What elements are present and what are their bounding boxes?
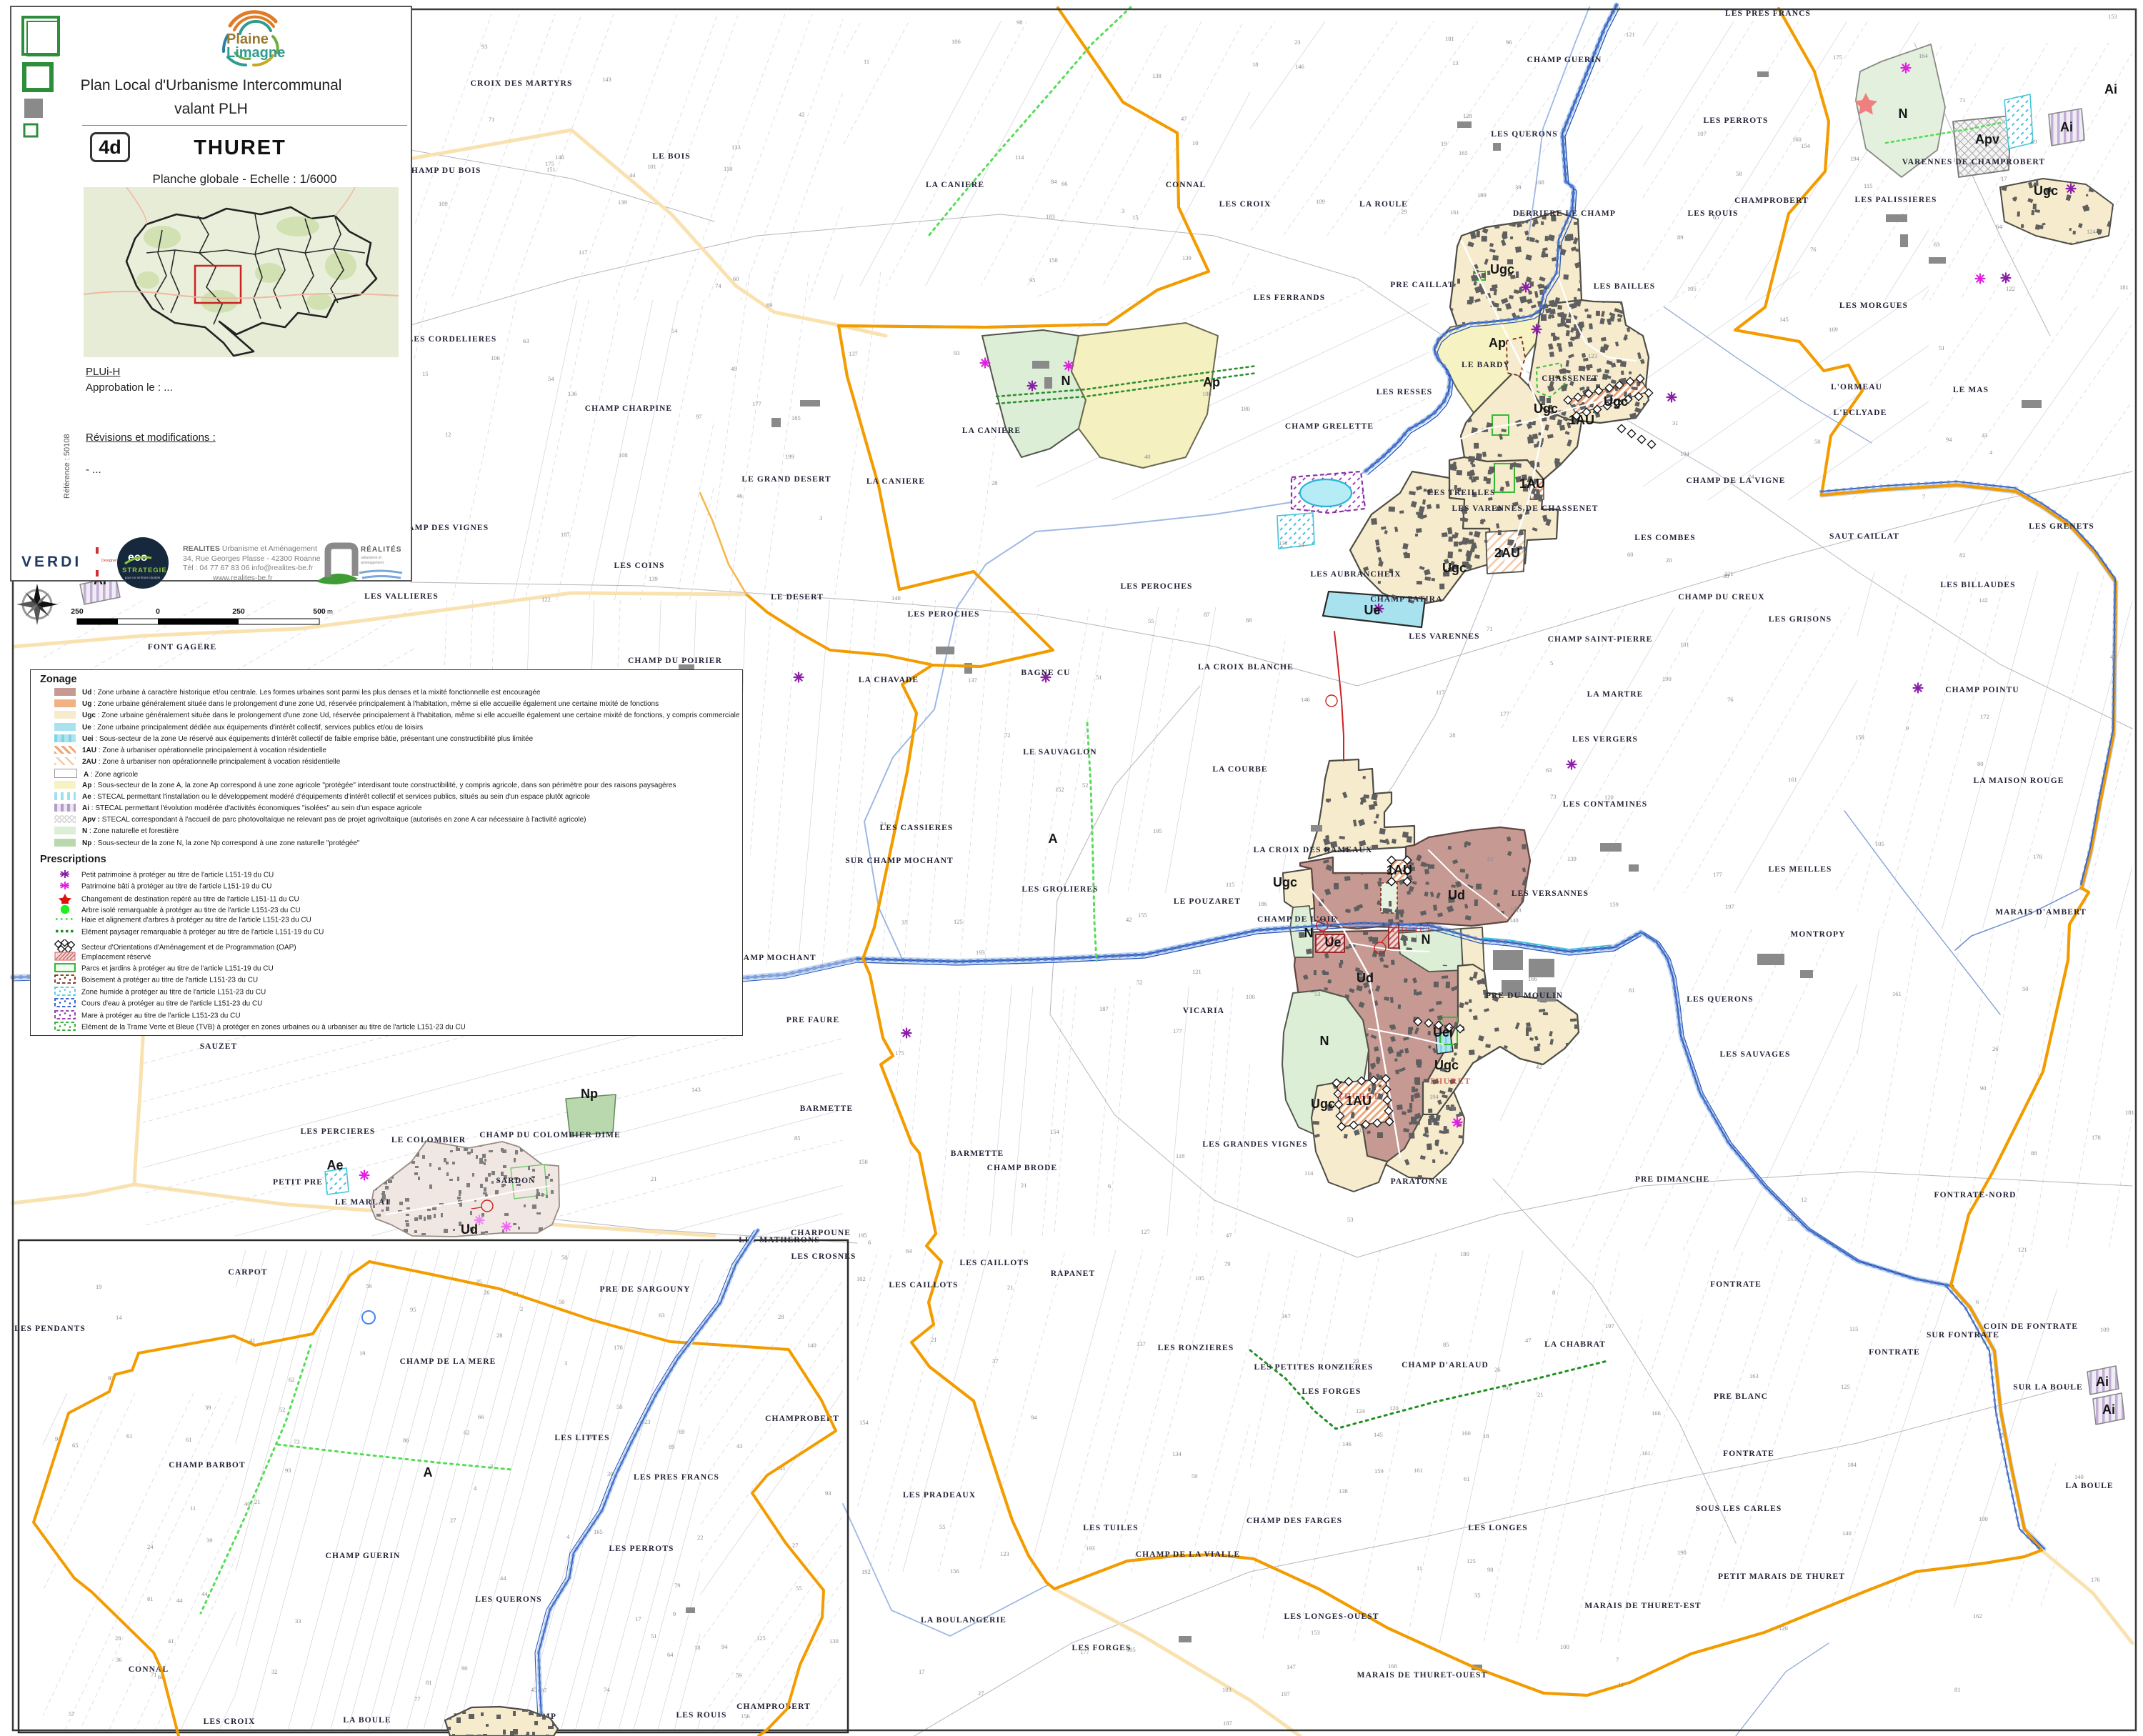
svg-text:177: 177 <box>1173 1027 1182 1034</box>
svg-text:121: 121 <box>2018 1246 2027 1253</box>
svg-text:Ud: Ud <box>1357 971 1374 985</box>
svg-text:160: 160 <box>1792 136 1802 143</box>
svg-text:CHAMP GRELETTE: CHAMP GRELETTE <box>1285 422 1374 431</box>
svg-text:52: 52 <box>1137 979 1143 986</box>
svg-text:41: 41 <box>168 1637 174 1645</box>
svg-text:84: 84 <box>1051 178 1057 185</box>
svg-text:BARMETTE: BARMETTE <box>800 1104 854 1113</box>
svg-text:163: 163 <box>1749 1372 1759 1380</box>
svg-text:59: 59 <box>736 1672 742 1679</box>
svg-text:LES PRES FRANCS: LES PRES FRANCS <box>1725 9 1811 18</box>
svg-text:162: 162 <box>1973 1612 1982 1620</box>
svg-text:LES QUERONS: LES QUERONS <box>1491 130 1558 139</box>
svg-text:500: 500 <box>313 607 326 616</box>
svg-text:21: 21 <box>1537 1391 1544 1398</box>
svg-text:137: 137 <box>849 350 858 357</box>
svg-text:LE POUZARET: LE POUZARET <box>1174 897 1241 906</box>
svg-text:142: 142 <box>1979 597 1988 604</box>
svg-text:urbanisme et: urbanisme et <box>361 556 382 560</box>
svg-text:93: 93 <box>481 43 488 50</box>
svg-text:55: 55 <box>796 1585 802 1592</box>
svg-text:197: 197 <box>1725 903 1734 910</box>
svg-text:Ue: Ue <box>1324 935 1341 949</box>
svg-text:18: 18 <box>1252 61 1259 68</box>
svg-text:195: 195 <box>1153 827 1162 834</box>
svg-text:188: 188 <box>1202 390 1212 397</box>
svg-text:BARMETTE: BARMETTE <box>951 1149 1004 1158</box>
svg-text:164: 164 <box>1919 52 1929 59</box>
svg-text:53: 53 <box>1314 990 1321 997</box>
svg-text:69: 69 <box>679 1428 685 1435</box>
svg-text:LES PETITES RONZIERES: LES PETITES RONZIERES <box>1254 1363 1374 1372</box>
svg-text:137: 137 <box>968 677 977 684</box>
svg-text:104: 104 <box>1680 450 1690 457</box>
svg-text:LES PALISSIERES: LES PALISSIERES <box>1854 196 1937 204</box>
svg-text:82: 82 <box>1959 552 1966 559</box>
svg-text:CHAMP GUERIN: CHAMP GUERIN <box>326 1552 401 1560</box>
svg-text:53: 53 <box>1347 1216 1354 1223</box>
svg-text:109: 109 <box>1316 198 1325 205</box>
svg-text:FONTRATE: FONTRATE <box>1869 1348 1920 1357</box>
svg-text:32: 32 <box>271 1668 278 1675</box>
svg-text:71: 71 <box>1487 625 1493 632</box>
svg-text:147: 147 <box>1287 1663 1296 1670</box>
svg-text:63: 63 <box>1934 241 1940 248</box>
svg-text:88: 88 <box>1246 617 1252 624</box>
svg-text:187: 187 <box>1099 1005 1109 1012</box>
svg-text:61: 61 <box>186 1436 192 1443</box>
svg-text:88: 88 <box>2031 1149 2037 1157</box>
svg-text:PRE BLANC: PRE BLANC <box>1714 1392 1768 1401</box>
svg-text:CONNAL: CONNAL <box>1166 181 1206 189</box>
svg-text:79: 79 <box>674 1582 681 1589</box>
svg-text:105: 105 <box>1875 840 1884 847</box>
svg-text:49: 49 <box>731 365 737 372</box>
svg-text:187: 187 <box>1223 1720 1232 1727</box>
svg-text:166: 166 <box>1652 1410 1661 1417</box>
svg-text:Ai: Ai <box>2104 82 2117 96</box>
svg-text:50: 50 <box>1814 438 1821 445</box>
svg-text:130: 130 <box>829 1637 839 1645</box>
svg-text:PRE DU MOULIN: PRE DU MOULIN <box>1486 992 1563 1000</box>
svg-text:37: 37 <box>992 1357 999 1365</box>
svg-text:43: 43 <box>1982 431 1988 439</box>
svg-text:VICARIA: VICARIA <box>1183 1007 1224 1015</box>
svg-text:28: 28 <box>496 1332 503 1339</box>
svg-text:74: 74 <box>604 1686 610 1693</box>
svg-text:pour un territoire durable: pour un territoire durable <box>125 576 161 579</box>
svg-text:LA BOULE: LA BOULE <box>343 1716 391 1725</box>
svg-text:LES GRENETS: LES GRENETS <box>2029 522 2094 531</box>
svg-text:71: 71 <box>489 116 495 123</box>
svg-text:CHAMPROBERT: CHAMPROBERT <box>1734 196 1809 205</box>
svg-text:117: 117 <box>1436 689 1444 696</box>
svg-text:Ugc: Ugc <box>1434 1058 1459 1072</box>
svg-text:6: 6 <box>868 1239 871 1246</box>
svg-text:6: 6 <box>1108 1182 1111 1189</box>
svg-text:106: 106 <box>951 38 961 45</box>
svg-text:73: 73 <box>294 1438 300 1445</box>
svg-text:1AU: 1AU <box>1387 863 1412 877</box>
svg-text:Ugc: Ugc <box>2034 184 2058 198</box>
svg-text:Ugc: Ugc <box>1534 401 1558 416</box>
svg-text:CHAMP BARBOT: CHAMP BARBOT <box>169 1461 245 1470</box>
svg-text:138: 138 <box>1339 1487 1348 1495</box>
svg-text:58: 58 <box>1736 170 1742 177</box>
svg-text:LES CROIX: LES CROIX <box>204 1717 256 1726</box>
svg-text:74: 74 <box>715 282 721 289</box>
svg-text:131: 131 <box>1279 539 1288 547</box>
svg-text:96: 96 <box>1506 39 1512 46</box>
svg-text:158: 158 <box>1049 256 1058 264</box>
svg-text:42: 42 <box>799 111 805 118</box>
svg-text:122: 122 <box>541 596 551 603</box>
svg-text:PRE CAILLAT: PRE CAILLAT <box>1390 281 1454 289</box>
svg-text:LES ROUIS: LES ROUIS <box>1688 209 1739 218</box>
svg-text:63: 63 <box>1546 767 1552 774</box>
svg-text:39: 39 <box>1515 184 1522 191</box>
svg-text:250: 250 <box>71 607 84 616</box>
svg-text:LA CHAVADE: LA CHAVADE <box>859 676 919 684</box>
svg-text:137: 137 <box>1137 1340 1146 1347</box>
svg-text:27: 27 <box>978 1690 984 1697</box>
svg-text:90: 90 <box>1980 1084 1987 1092</box>
svg-text:154: 154 <box>1050 1128 1060 1135</box>
svg-text:N: N <box>1061 374 1071 388</box>
svg-text:44: 44 <box>176 1597 183 1604</box>
svg-text:102: 102 <box>856 1275 866 1282</box>
svg-text:MARAIS DE THURET-EST: MARAIS DE THURET-EST <box>1584 1602 1701 1610</box>
svg-text:63: 63 <box>659 1312 665 1319</box>
svg-text:1AU: 1AU <box>1346 1094 1372 1108</box>
svg-text:51: 51 <box>651 1632 657 1640</box>
svg-text:140: 140 <box>891 594 901 602</box>
svg-text:115: 115 <box>1864 182 1872 189</box>
svg-text:100: 100 <box>1979 1515 1988 1522</box>
svg-text:VERDI: VERDI <box>21 554 81 570</box>
svg-text:LES MEILLES: LES MEILLES <box>1768 865 1832 874</box>
svg-text:50: 50 <box>616 1403 623 1410</box>
svg-text:94: 94 <box>721 1643 728 1650</box>
svg-text:61: 61 <box>1464 1475 1470 1482</box>
svg-text:79: 79 <box>1224 1260 1231 1267</box>
svg-text:A: A <box>1049 832 1058 846</box>
svg-text:181: 181 <box>1445 35 1454 42</box>
svg-text:178: 178 <box>2033 853 2042 860</box>
svg-text:76: 76 <box>1727 696 1734 703</box>
svg-text:LES FORGES: LES FORGES <box>1072 1644 1132 1652</box>
svg-text:180: 180 <box>1241 405 1250 412</box>
svg-text:12: 12 <box>445 431 451 438</box>
svg-text:24: 24 <box>1298 542 1304 549</box>
svg-text:19: 19 <box>1441 140 1447 147</box>
svg-text:121: 121 <box>1192 968 1202 975</box>
svg-text:108: 108 <box>619 452 628 459</box>
svg-text:195: 195 <box>858 1232 867 1239</box>
svg-text:51: 51 <box>1096 674 1102 681</box>
svg-text:Ud: Ud <box>461 1222 478 1237</box>
svg-text:CHAMP DU COLOMBIER DIME: CHAMP DU COLOMBIER DIME <box>479 1131 620 1139</box>
svg-text:7: 7 <box>1616 1656 1619 1663</box>
svg-text:124: 124 <box>2087 228 2097 235</box>
svg-text:139: 139 <box>1182 254 1192 261</box>
svg-text:177: 177 <box>1713 871 1722 878</box>
svg-text:RAPANET: RAPANET <box>1051 1269 1095 1278</box>
svg-text:100: 100 <box>1462 1430 1471 1437</box>
svg-text:72: 72 <box>1004 732 1011 739</box>
svg-text:161: 161 <box>1788 776 1797 783</box>
svg-text:L'ECLYADE: L'ECLYADE <box>1834 409 1887 417</box>
svg-text:LA ROULE: LA ROULE <box>1359 200 1408 209</box>
svg-text:LE MAS: LE MAS <box>1953 386 1989 394</box>
svg-text:LES PERCIERES: LES PERCIERES <box>301 1127 376 1136</box>
svg-text:3: 3 <box>1122 207 1124 214</box>
svg-text:BAGNE CU: BAGNE CU <box>1021 669 1070 677</box>
svg-text:51: 51 <box>1939 344 1945 351</box>
svg-text:52: 52 <box>279 1406 286 1413</box>
svg-text:81: 81 <box>426 1679 432 1686</box>
svg-text:165: 165 <box>1459 149 1468 156</box>
svg-text:62: 62 <box>464 1429 470 1436</box>
svg-text:aménagement: aménagement <box>361 561 384 565</box>
svg-text:LES MORGUES: LES MORGUES <box>1839 301 1908 310</box>
svg-text:161: 161 <box>1450 209 1459 216</box>
svg-text:89: 89 <box>669 1443 675 1450</box>
svg-text:35: 35 <box>1474 1592 1481 1599</box>
svg-text:117: 117 <box>579 249 587 256</box>
svg-text:181: 181 <box>2125 1109 2134 1116</box>
svg-text:55: 55 <box>1148 617 1154 624</box>
svg-text:LES LONGES: LES LONGES <box>1468 1524 1528 1532</box>
svg-text:LES CONTAMINES: LES CONTAMINES <box>1563 800 1647 809</box>
svg-text:64: 64 <box>1996 223 2002 230</box>
svg-text:CHAMP DE L'OIE: CHAMP DE L'OIE <box>1257 915 1337 924</box>
svg-text:125: 125 <box>1841 1383 1850 1390</box>
svg-text:124: 124 <box>1356 1407 1366 1415</box>
svg-text:100: 100 <box>1560 1643 1569 1650</box>
svg-text:60: 60 <box>733 275 739 282</box>
svg-text:85: 85 <box>794 1134 801 1142</box>
svg-text:CHAMP DE LA MERE: CHAMP DE LA MERE <box>400 1357 496 1366</box>
svg-text:FONTRATE: FONTRATE <box>1723 1450 1774 1458</box>
svg-text:6: 6 <box>1976 1298 1979 1305</box>
svg-text:LA CANIERE: LA CANIERE <box>926 181 984 189</box>
svg-text:199: 199 <box>785 453 794 460</box>
svg-text:120: 120 <box>1389 1405 1399 1412</box>
svg-text:161: 161 <box>1414 1467 1423 1474</box>
svg-text:57: 57 <box>69 1710 75 1717</box>
svg-text:Ai: Ai <box>2096 1375 2109 1389</box>
svg-text:LES GRANDES VIGNES: LES GRANDES VIGNES <box>1202 1140 1307 1149</box>
svg-text:RÉALITÉS: RÉALITÉS <box>361 544 401 554</box>
svg-text:21: 21 <box>1021 1182 1027 1189</box>
svg-text:159: 159 <box>1374 1467 1384 1475</box>
svg-text:77: 77 <box>414 1695 421 1702</box>
svg-text:2: 2 <box>520 1305 523 1312</box>
svg-text:11: 11 <box>190 1505 196 1512</box>
svg-text:LES CAILLOTS: LES CAILLOTS <box>959 1259 1029 1267</box>
svg-text:120: 120 <box>1779 1625 1788 1632</box>
svg-text:61: 61 <box>126 1432 133 1440</box>
svg-text:39: 39 <box>205 1404 211 1411</box>
svg-text:PARATONNE: PARATONNE <box>1391 1177 1449 1186</box>
svg-text:176: 176 <box>1446 1104 1455 1112</box>
svg-text:139: 139 <box>649 575 658 582</box>
svg-text:LES GROLIERES: LES GROLIERES <box>1021 885 1098 894</box>
svg-text:133: 133 <box>731 144 741 151</box>
svg-text:CHAMP DE LA VIGNE: CHAMP DE LA VIGNE <box>1687 477 1786 485</box>
svg-text:17: 17 <box>2001 175 2007 182</box>
svg-text:50: 50 <box>559 1298 565 1305</box>
svg-text:FONTRATE: FONTRATE <box>1710 1280 1762 1289</box>
svg-text:Ugc: Ugc <box>1604 394 1628 409</box>
svg-text:LES PENDANTS: LES PENDANTS <box>14 1325 86 1333</box>
svg-text:89: 89 <box>1677 234 1684 241</box>
svg-text:1AU: 1AU <box>1569 413 1594 427</box>
svg-text:60: 60 <box>1627 551 1634 558</box>
svg-text:14: 14 <box>116 1314 122 1321</box>
svg-text:109: 109 <box>2100 1326 2109 1333</box>
svg-text:106: 106 <box>491 354 500 361</box>
svg-text:19: 19 <box>96 1283 102 1290</box>
svg-text:197: 197 <box>1605 1322 1614 1330</box>
svg-text:71: 71 <box>1959 96 1966 104</box>
svg-text:LA BOULANGERIE: LA BOULANGERIE <box>921 1616 1006 1625</box>
svg-text:N: N <box>1304 926 1314 940</box>
svg-text:127: 127 <box>1141 1228 1150 1235</box>
svg-text:LES VARENNES: LES VARENNES <box>1409 632 1479 641</box>
svg-text:40: 40 <box>1144 453 1151 460</box>
svg-text:146: 146 <box>1295 63 1304 70</box>
svg-text:168: 168 <box>1388 1662 1397 1670</box>
svg-text:Ai: Ai <box>2060 120 2073 134</box>
svg-text:93: 93 <box>825 1490 831 1497</box>
svg-text:46: 46 <box>736 492 743 499</box>
svg-text:FONT GAGERE: FONT GAGERE <box>148 643 217 652</box>
svg-text:95: 95 <box>1029 276 1036 284</box>
svg-text:LES LONGES-OUEST: LES LONGES-OUEST <box>1284 1612 1379 1621</box>
svg-text:146: 146 <box>1342 1440 1352 1447</box>
svg-text:LES GRISONS: LES GRISONS <box>1769 615 1832 624</box>
svg-text:44: 44 <box>500 1575 506 1582</box>
svg-text:23: 23 <box>1114 954 1121 961</box>
svg-text:123: 123 <box>1588 352 1597 359</box>
svg-text:80: 80 <box>1977 760 1984 767</box>
svg-text:Uei: Uei <box>1433 1025 1453 1039</box>
svg-text:180: 180 <box>1460 1250 1469 1257</box>
svg-text:47: 47 <box>1226 1232 1232 1239</box>
svg-text:15: 15 <box>1132 214 1139 221</box>
svg-text:153: 153 <box>1311 1629 1320 1636</box>
svg-text:LES QUERONS: LES QUERONS <box>475 1595 542 1604</box>
svg-text:56: 56 <box>366 1282 372 1289</box>
svg-text:139: 139 <box>618 199 627 206</box>
svg-text:SAUT CAILLAT: SAUT CAILLAT <box>1829 532 1899 541</box>
svg-text:44: 44 <box>201 1590 208 1597</box>
svg-text:Ai: Ai <box>2102 1402 2115 1417</box>
svg-text:177: 177 <box>752 400 761 407</box>
svg-text:153: 153 <box>2108 13 2117 20</box>
svg-text:55: 55 <box>939 1523 946 1530</box>
svg-text:STRATEGIE: STRATEGIE <box>122 567 167 574</box>
svg-text:28: 28 <box>1449 732 1456 739</box>
svg-text:18: 18 <box>694 1644 701 1651</box>
svg-text:L'ORMEAU: L'ORMEAU <box>1831 383 1882 391</box>
svg-text:PRE DE SARGOUNY: PRE DE SARGOUNY <box>599 1285 690 1294</box>
svg-text:3: 3 <box>564 1360 567 1367</box>
svg-text:18: 18 <box>1483 1432 1489 1440</box>
svg-text:86: 86 <box>403 1437 409 1444</box>
svg-text:121: 121 <box>1626 31 1635 38</box>
svg-text:94: 94 <box>1031 1414 1037 1421</box>
svg-text:47: 47 <box>1525 1337 1532 1344</box>
svg-text:50: 50 <box>1192 1472 1198 1480</box>
svg-text:187: 187 <box>561 531 570 538</box>
svg-text:3: 3 <box>819 514 822 522</box>
svg-text:154: 154 <box>1801 142 1811 149</box>
svg-text:17: 17 <box>919 1668 925 1675</box>
svg-text:105: 105 <box>1687 285 1697 292</box>
svg-text:186: 186 <box>1258 900 1267 907</box>
svg-text:17: 17 <box>635 1615 641 1622</box>
svg-text:LES FORGES: LES FORGES <box>1302 1387 1362 1396</box>
svg-text:CHAMP DU CREUX: CHAMP DU CREUX <box>1678 593 1764 602</box>
svg-text:Ap: Ap <box>1203 375 1220 389</box>
svg-text:178: 178 <box>2092 1134 2101 1141</box>
svg-text:130: 130 <box>1359 1127 1368 1134</box>
svg-text:Ap: Ap <box>1489 336 1506 350</box>
svg-text:184: 184 <box>1847 1461 1857 1468</box>
svg-text:190: 190 <box>1662 675 1672 682</box>
svg-text:PETIT MARAIS DE THURET: PETIT MARAIS DE THURET <box>1718 1572 1845 1581</box>
svg-text:15: 15 <box>422 370 429 377</box>
svg-text:138: 138 <box>1152 72 1162 79</box>
svg-text:LE SAUVAGLON: LE SAUVAGLON <box>1023 748 1097 757</box>
svg-text:39: 39 <box>607 1470 614 1477</box>
svg-text:139: 139 <box>1567 855 1577 862</box>
svg-text:CHAMP GUERIN: CHAMP GUERIN <box>1527 56 1602 64</box>
svg-text:150: 150 <box>1855 734 1864 741</box>
svg-text:45: 45 <box>531 1686 537 1693</box>
svg-text:MARAIS D'AMBERT: MARAIS D'AMBERT <box>1995 908 2087 917</box>
svg-text:109: 109 <box>439 200 448 207</box>
svg-text:93: 93 <box>954 349 960 356</box>
svg-text:27: 27 <box>792 1542 799 1549</box>
svg-text:44: 44 <box>2110 653 2117 660</box>
svg-text:54: 54 <box>671 327 678 334</box>
svg-text:63: 63 <box>523 337 529 344</box>
svg-text:13: 13 <box>1452 59 1459 66</box>
svg-text:52: 52 <box>1082 782 1089 789</box>
svg-text:140: 140 <box>2074 1473 2084 1480</box>
svg-text:158: 158 <box>859 1158 868 1165</box>
svg-text:SUR FONTRATE: SUR FONTRATE <box>1927 1331 1999 1340</box>
svg-text:26: 26 <box>1992 1045 1999 1052</box>
svg-text:114: 114 <box>1304 1169 1314 1177</box>
svg-text:26: 26 <box>484 1289 490 1296</box>
svg-text:Limagne: Limagne <box>226 45 285 61</box>
svg-text:LES RESSES: LES RESSES <box>1377 388 1432 396</box>
svg-text:3: 3 <box>490 1462 493 1470</box>
svg-text:175: 175 <box>895 1049 904 1057</box>
svg-text:SAUZET: SAUZET <box>200 1042 238 1051</box>
svg-text:62: 62 <box>289 1376 295 1383</box>
svg-text:LA MARTRE: LA MARTRE <box>1587 690 1644 699</box>
svg-text:MARAIS DE THURET-OUEST: MARAIS DE THURET-OUEST <box>1357 1671 1488 1680</box>
svg-text:31: 31 <box>1672 419 1679 426</box>
svg-text:LES PEROCHES: LES PEROCHES <box>1120 582 1192 591</box>
svg-text:85: 85 <box>1443 1341 1449 1348</box>
